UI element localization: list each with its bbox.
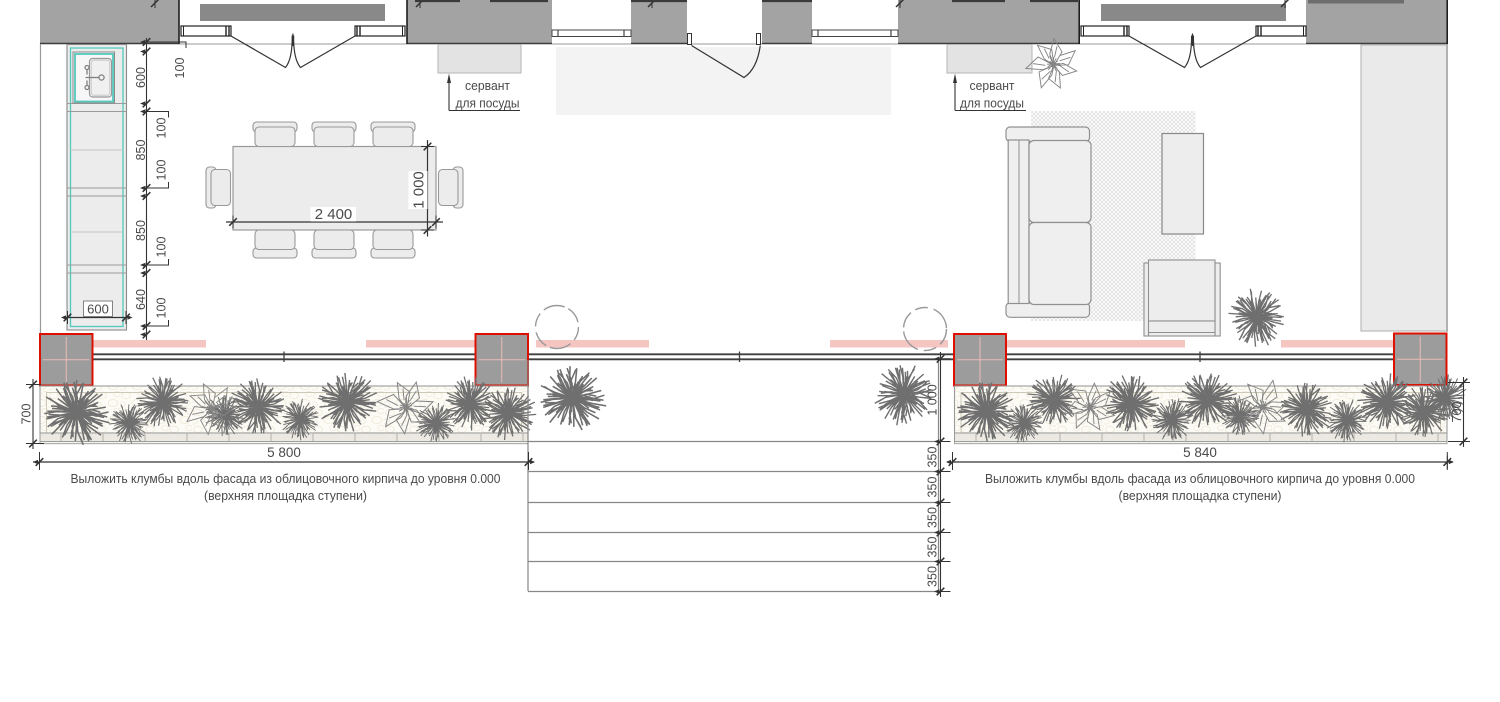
svg-text:2 400: 2 400: [315, 206, 353, 223]
svg-text:600: 600: [134, 67, 148, 88]
svg-text:Выложить клумбы вдоль фасада и: Выложить клумбы вдоль фасада из облицово…: [71, 471, 501, 486]
svg-text:5 800: 5 800: [267, 445, 301, 460]
svg-text:700: 700: [1450, 402, 1464, 423]
svg-text:850: 850: [134, 140, 148, 161]
svg-text:для посуды: для посуды: [456, 97, 520, 111]
svg-text:100: 100: [155, 118, 169, 139]
svg-text:100: 100: [173, 58, 187, 79]
svg-text:850: 850: [134, 220, 148, 241]
svg-text:100: 100: [155, 160, 169, 181]
svg-text:(верхняя площадка ступени): (верхняя площадка ступени): [1119, 488, 1282, 503]
svg-text:600: 600: [87, 302, 109, 317]
svg-text:сервант: сервант: [465, 79, 510, 93]
svg-text:для посуды: для посуды: [960, 97, 1024, 111]
svg-text:1 000: 1 000: [926, 384, 940, 415]
svg-text:100: 100: [155, 298, 169, 319]
svg-text:640: 640: [134, 289, 148, 310]
svg-text:сервант: сервант: [970, 79, 1015, 93]
svg-text:350: 350: [926, 477, 940, 498]
svg-text:350: 350: [926, 507, 940, 528]
svg-text:350: 350: [926, 447, 940, 468]
svg-text:700: 700: [20, 404, 34, 425]
svg-text:Выложить клумбы вдоль фасада и: Выложить клумбы вдоль фасада из облицово…: [985, 471, 1415, 486]
svg-text:(верхняя площадка ступени): (верхняя площадка ступени): [204, 488, 367, 503]
svg-text:350: 350: [926, 566, 940, 587]
svg-text:1 000: 1 000: [411, 171, 428, 209]
svg-text:350: 350: [926, 537, 940, 558]
svg-text:5 840: 5 840: [1183, 445, 1217, 460]
svg-text:100: 100: [155, 237, 169, 258]
